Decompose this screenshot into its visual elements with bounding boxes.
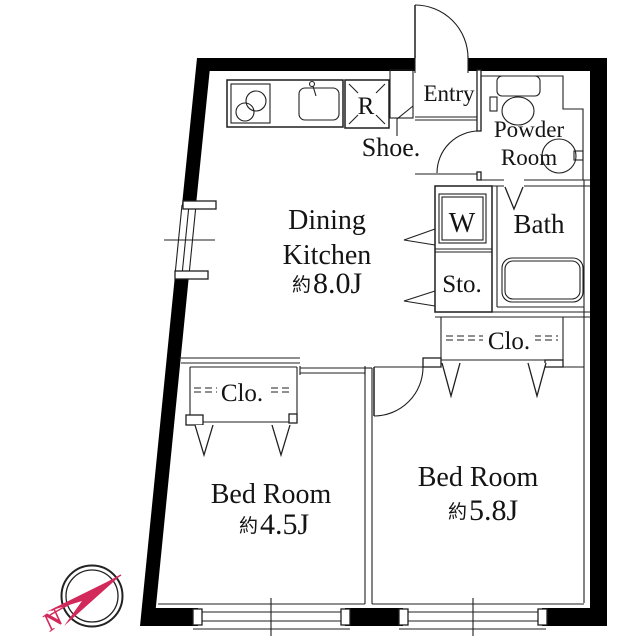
- bedroom-small-area: 4.5J: [260, 508, 310, 541]
- washer-door-arrow: [404, 229, 435, 245]
- west-window: [164, 201, 216, 279]
- shoe-leader-line: [397, 106, 413, 136]
- entry-opening: [415, 56, 468, 73]
- bedroom-small-opening: [300, 366, 365, 375]
- bath-label: Bath: [514, 209, 565, 239]
- burner-small: [236, 103, 254, 121]
- closet-left-door-marker: [195, 425, 213, 455]
- storage-door-arrow: [404, 291, 435, 306]
- closet-left-door-marker: [272, 425, 290, 455]
- refrigerator-label: R: [358, 93, 375, 120]
- bath-door-marker: [505, 187, 523, 209]
- bedroom-partition-wall: [365, 368, 372, 604]
- closet-right-door-marker: [528, 363, 546, 396]
- floor-plan-svg: Entry Shoe. R Dining Kitchen 約 8.0J Powd…: [0, 0, 640, 640]
- burner-large: [246, 91, 266, 111]
- storage-label: Sto.: [442, 271, 482, 298]
- compass: N: [36, 566, 123, 638]
- bath-room: [497, 180, 584, 603]
- labels: Entry Shoe. R Dining Kitchen 約 8.0J Powd…: [211, 81, 565, 541]
- powder-room-label-line1: Powder: [494, 117, 565, 142]
- bedroom-large-label: Bed Room: [418, 462, 539, 493]
- sink: [299, 88, 339, 120]
- bedroom-small-area-prefix: 約: [239, 515, 258, 537]
- closet-right-door-marker: [442, 363, 460, 396]
- dining-kitchen-label-line1: Dining: [288, 205, 366, 236]
- entry-label: Entry: [423, 81, 475, 106]
- washer-label: W: [449, 208, 476, 239]
- powder-room-label-line2: Room: [501, 145, 557, 170]
- shoe-cabinet: [390, 70, 413, 136]
- dining-kitchen-area: 8.0J: [313, 267, 363, 300]
- entry-door: [415, 5, 468, 58]
- dining-kitchen-area-prefix: 約: [292, 274, 311, 296]
- bedroom-small-label: Bed Room: [211, 479, 332, 510]
- kitchen-counter: [227, 80, 343, 127]
- floor-plan-canvas: Entry Shoe. R Dining Kitchen 約 8.0J Powd…: [0, 0, 640, 640]
- closet-right-label: Clo.: [488, 328, 530, 355]
- bedroom-large-area: 5.8J: [469, 494, 519, 527]
- bathtub: [502, 258, 583, 302]
- bedroom-large-door: [374, 358, 441, 416]
- closet-left-label: Clo.: [221, 380, 263, 407]
- bedroom-large-area-prefix: 約: [448, 501, 467, 523]
- shoe-label: Shoe.: [362, 133, 421, 162]
- powder-room-door: [437, 131, 479, 173]
- stove: [231, 84, 270, 123]
